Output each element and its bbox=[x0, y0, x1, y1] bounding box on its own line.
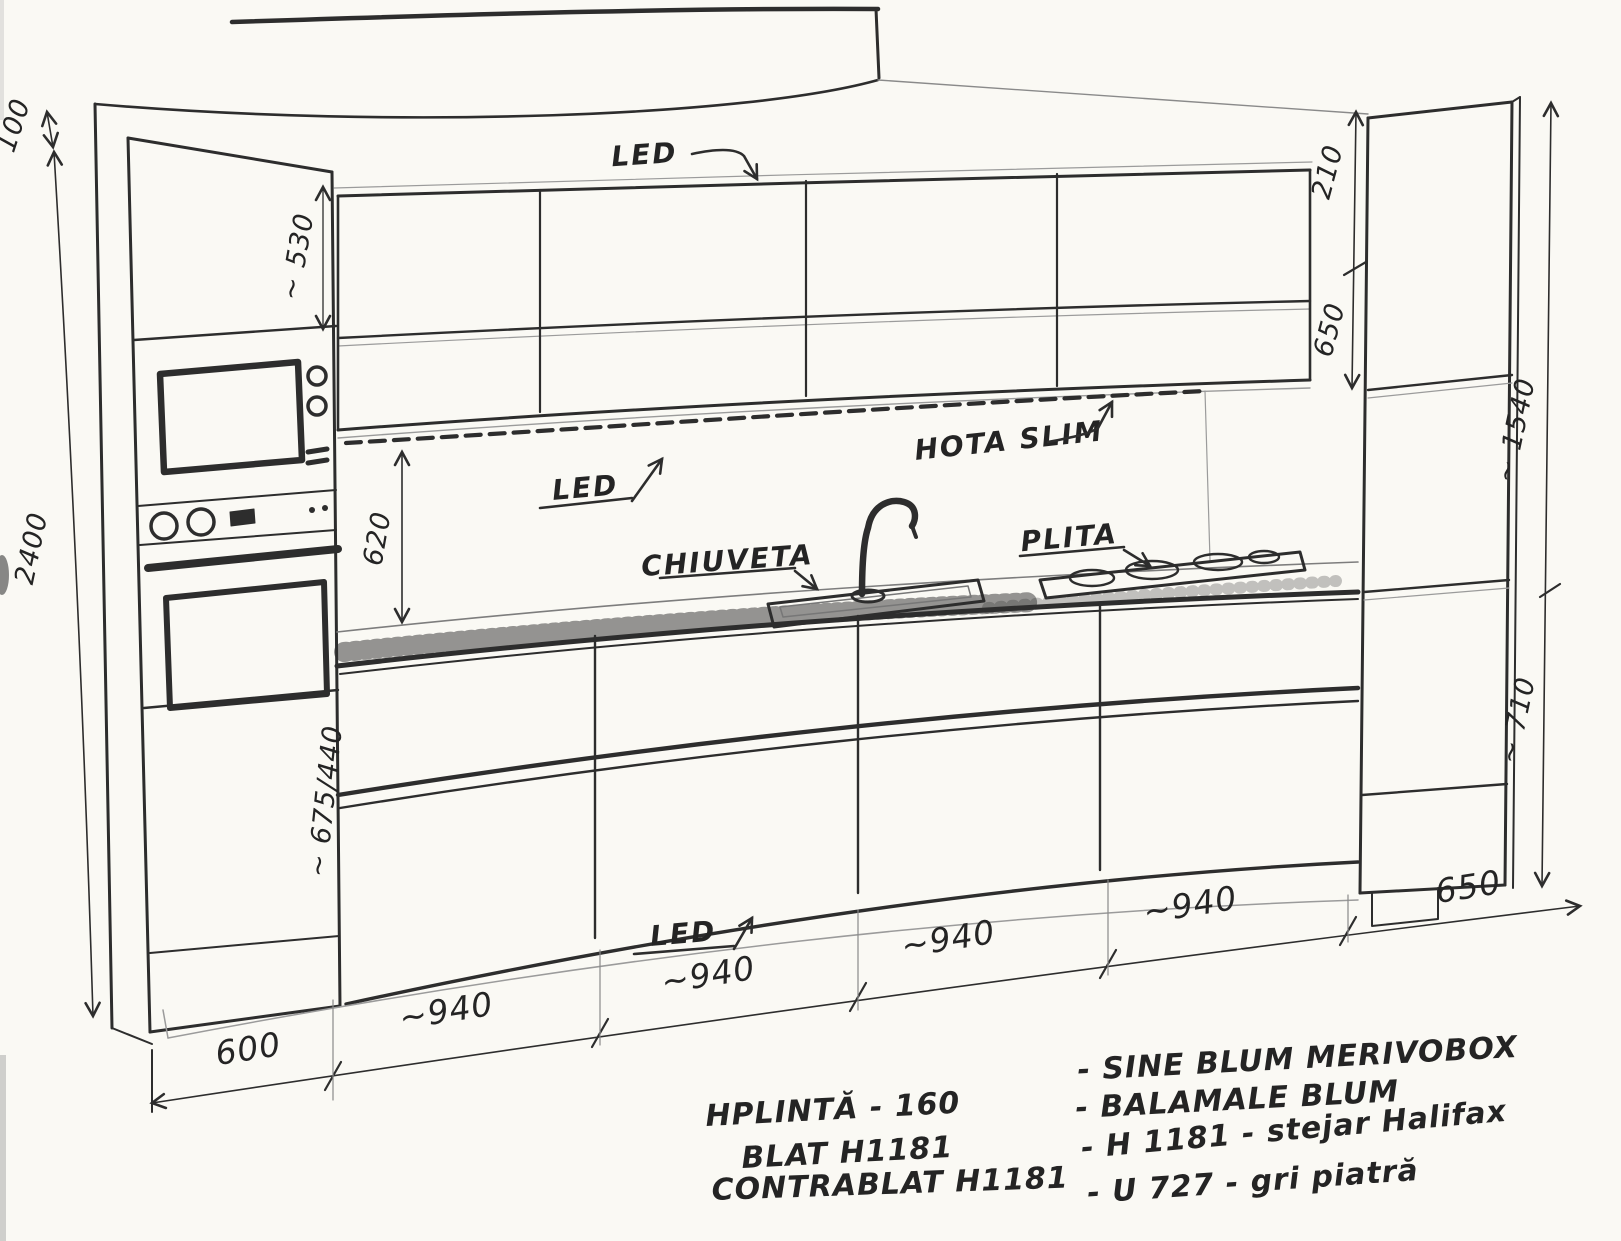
plinth-foot bbox=[1372, 888, 1438, 926]
oven bbox=[148, 505, 338, 708]
dim-total-height: 2400 bbox=[9, 509, 54, 587]
dim-width-650: 650 bbox=[1433, 862, 1504, 911]
right-tall-cabinet bbox=[1360, 97, 1520, 926]
oven-handle bbox=[148, 549, 338, 568]
oven-knob-icon bbox=[188, 509, 214, 535]
burner-icon bbox=[1070, 570, 1114, 586]
microwave-knob-icon bbox=[308, 397, 326, 415]
led-bottom-arrow bbox=[734, 918, 752, 949]
oven-window bbox=[166, 582, 327, 708]
counter-hatching bbox=[344, 602, 1034, 652]
dim-ceiling-gap: 100 bbox=[0, 95, 37, 156]
dim-left-upper-door: ~ 530 bbox=[275, 211, 321, 303]
microwave-window bbox=[160, 362, 302, 472]
led-top-arrow bbox=[692, 150, 757, 179]
led-label-top: LED bbox=[610, 136, 678, 174]
hood-label: HOTA SLIM bbox=[913, 414, 1105, 467]
dim-right-gap-top: 210 bbox=[1306, 141, 1350, 202]
sketch-canvas: 100 2400 ~ 530 620 210 650 ~ 1540 ~ 710 … bbox=[0, 0, 1621, 1241]
dim-width-940-3: ~940 bbox=[898, 912, 998, 965]
microwave-knob-icon bbox=[308, 367, 326, 385]
dim-upper-height: 650 bbox=[1308, 299, 1352, 360]
dim-width-600: 600 bbox=[213, 1024, 284, 1073]
note-plinth: HPLINTĂ - 160 bbox=[704, 1084, 961, 1134]
microwave bbox=[160, 362, 327, 472]
dim-right-tall-lower: ~ 710 bbox=[1493, 674, 1542, 766]
dim-width-940-1: ~940 bbox=[396, 984, 496, 1037]
oven-display bbox=[230, 509, 255, 526]
oven-knob-icon bbox=[151, 513, 177, 539]
annotation-labels: LED LED LED HOTA SLIM CHIUVETA PLITA bbox=[540, 136, 1150, 954]
sink-arrow bbox=[795, 571, 817, 589]
led-mid-arrow bbox=[632, 459, 662, 501]
base-cabinets bbox=[163, 603, 1358, 1038]
dim-splashback: 620 bbox=[358, 509, 398, 568]
faucet-neck bbox=[862, 501, 915, 594]
note-decor-u727: - U 727 - gri piatră bbox=[1086, 1153, 1420, 1211]
upper-wall-cabinets bbox=[334, 162, 1312, 438]
dim-left-drawers: ~ 675/440 bbox=[302, 724, 349, 879]
notes: HPLINTĂ - 160 BLAT H1181 CONTRABLAT H118… bbox=[704, 1030, 1519, 1211]
scan-artifacts bbox=[0, 0, 9, 1241]
dim-right-tall-upper: ~ 1540 bbox=[1490, 375, 1542, 485]
dim-width-940-4: ~940 bbox=[1140, 878, 1240, 931]
kitchen-elevation-sketch: 100 2400 ~ 530 620 210 650 ~ 1540 ~ 710 … bbox=[0, 0, 1621, 1241]
